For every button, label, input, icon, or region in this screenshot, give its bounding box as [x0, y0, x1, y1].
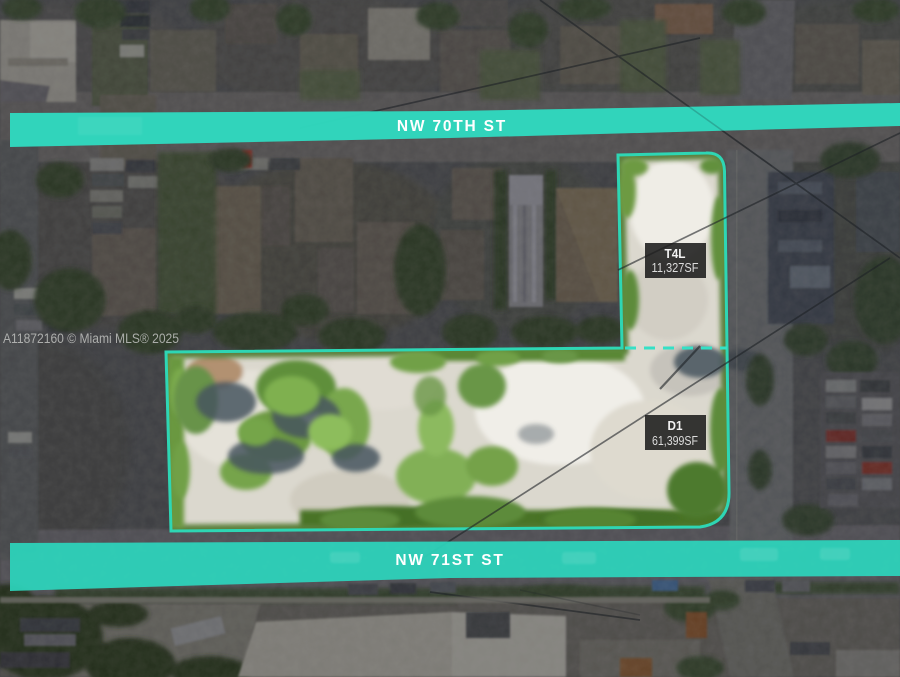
svg-text:61,399SF: 61,399SF: [652, 434, 698, 448]
svg-text:D1: D1: [668, 418, 683, 433]
svg-text:T4L: T4L: [665, 246, 686, 261]
svg-text:NW 70TH ST: NW 70TH ST: [397, 118, 507, 135]
svg-text:11,327SF: 11,327SF: [652, 261, 699, 275]
svg-text:A11872160 © Miami MLS® 2025: A11872160 © Miami MLS® 2025: [3, 331, 179, 346]
svg-text:NW 71ST ST: NW 71ST ST: [395, 552, 504, 569]
